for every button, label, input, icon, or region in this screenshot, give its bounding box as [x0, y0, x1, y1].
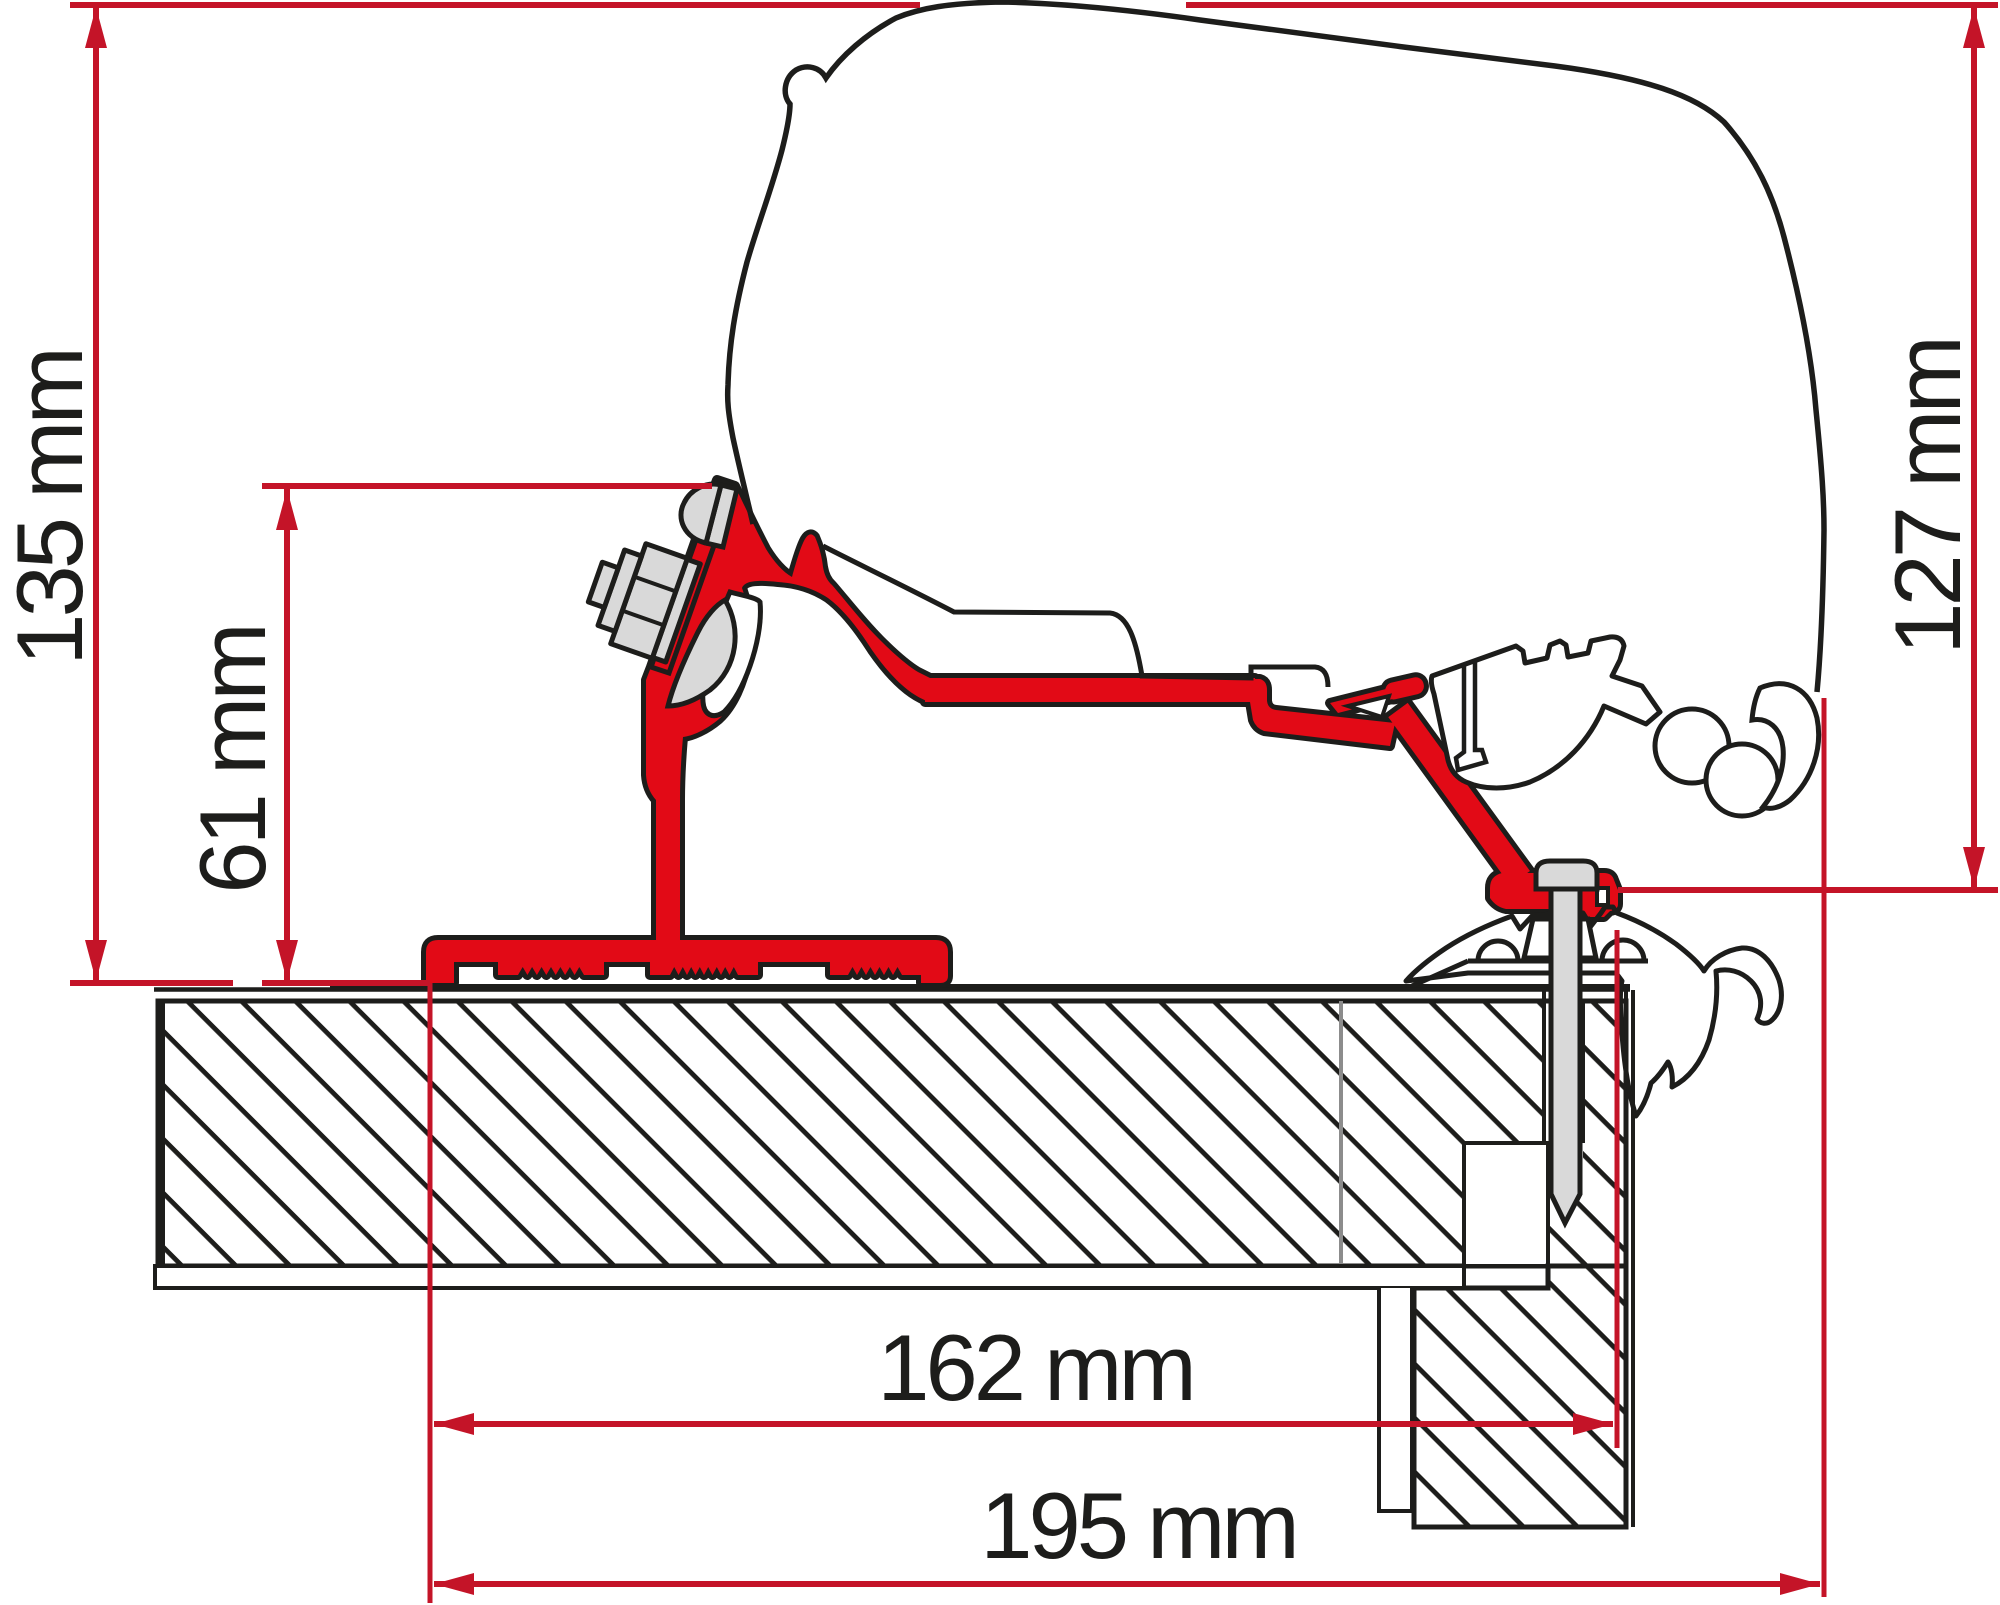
svg-text:162 mm: 162 mm	[877, 1315, 1193, 1420]
svg-text:135 mm: 135 mm	[0, 350, 102, 666]
svg-text:127 mm: 127 mm	[1875, 339, 1980, 655]
svg-text:61 mm: 61 mm	[180, 626, 285, 893]
svg-text:195 mm: 195 mm	[980, 1473, 1296, 1578]
